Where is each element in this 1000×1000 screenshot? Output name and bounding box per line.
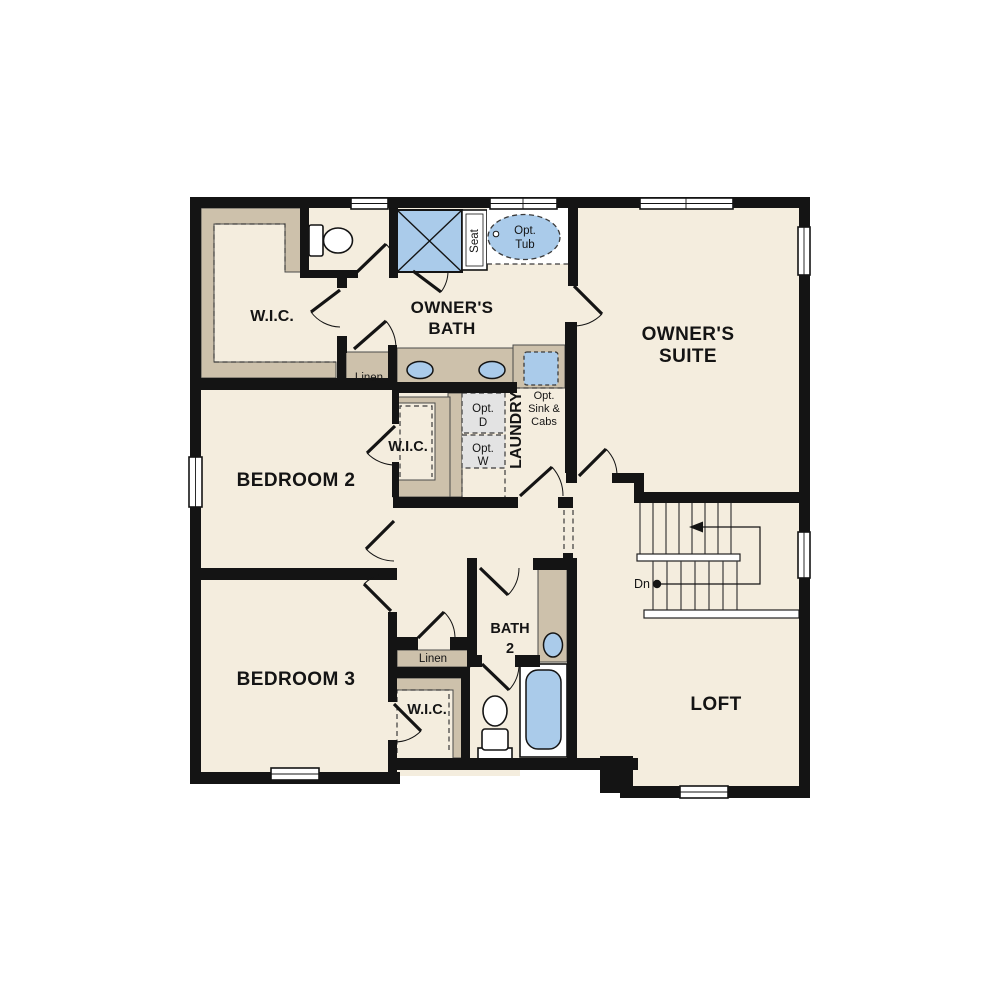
stair-start-dot <box>653 580 661 588</box>
wall-segment <box>467 558 477 657</box>
wall-segment <box>190 568 397 580</box>
floor-plan: OWNER'S SUITE OWNER'S BATH W.I.C. BEDROO… <box>0 0 1000 1000</box>
opt-sink <box>524 352 558 385</box>
wall-segment <box>566 473 577 483</box>
wall-segment <box>567 558 577 760</box>
wall-segment <box>799 197 810 798</box>
label-opt-sink-cabs-3: Cabs <box>531 416 557 428</box>
label-seat: Seat <box>469 228 481 252</box>
window <box>351 198 388 209</box>
opt-tub <box>488 215 560 260</box>
label-linen-lower: Linen <box>419 653 447 665</box>
wall-segment <box>568 208 578 286</box>
room-label-wic-bedroom2: W.I.C. <box>388 439 427 455</box>
wall-segment <box>300 208 309 278</box>
label-opt-dryer-2: D <box>479 417 487 429</box>
window <box>490 198 557 209</box>
room-label-owners-suite-2: SUITE <box>659 346 717 367</box>
tub-faucet <box>493 231 499 237</box>
room-label-laundry: LAUNDRY <box>508 391 525 469</box>
window <box>680 786 728 798</box>
bath2-toilet-tank <box>482 729 508 750</box>
window <box>271 768 319 780</box>
bath2-tub <box>526 670 561 749</box>
label-linen-upper: Linen <box>355 372 383 384</box>
wall-segment <box>388 612 397 702</box>
room-label-bedroom3: BEDROOM 3 <box>237 669 356 690</box>
label-stairs-down: Dn <box>634 577 650 591</box>
wall-segment <box>558 497 573 508</box>
window <box>189 457 202 507</box>
label-opt-tub-2: Tub <box>515 239 534 251</box>
room-label-wic-bedroom3: W.I.C. <box>407 702 446 718</box>
wall-segment <box>393 382 517 393</box>
window <box>640 198 733 209</box>
window <box>798 227 810 275</box>
wall-segment <box>392 462 399 497</box>
wall-segment <box>393 497 518 508</box>
toilet-bowl-wc <box>324 228 353 253</box>
wall-segment <box>565 322 577 473</box>
label-opt-washer: Opt. <box>472 443 494 455</box>
stair-bottom-edge <box>644 610 799 618</box>
label-opt-dryer: Opt. <box>472 403 494 415</box>
wall-segment <box>337 270 347 288</box>
wall-segment <box>388 740 397 772</box>
vanity-sink-right <box>479 362 505 379</box>
wall-segment <box>461 678 470 762</box>
wall-segment <box>393 637 418 650</box>
label-opt-washer-2: W <box>478 456 489 468</box>
wall-segment <box>393 667 470 678</box>
wall-segment <box>392 388 399 424</box>
window <box>798 532 810 578</box>
room-label-bath2-2: 2 <box>506 641 514 657</box>
room-label-bedroom2: BEDROOM 2 <box>237 470 356 491</box>
label-opt-tub: Opt. <box>514 225 536 237</box>
room-label-bath2: BATH <box>490 621 529 637</box>
toilet-tank-wc <box>309 225 323 256</box>
vanity-sink-left <box>407 362 433 379</box>
wall-segment <box>467 655 482 667</box>
room-label-owners-suite: OWNER'S <box>642 324 735 345</box>
bath2-toilet-bowl <box>483 696 507 726</box>
room-label-owners-wic: W.I.C. <box>250 308 294 325</box>
stair-landing <box>637 554 740 561</box>
label-opt-sink-cabs: Opt. <box>534 390 555 402</box>
room-label-owners-bath: OWNER'S <box>411 298 494 317</box>
label-opt-sink-cabs-2: Sink & <box>528 403 560 415</box>
room-label-loft: LOFT <box>690 694 741 715</box>
bath2-sink <box>544 633 563 657</box>
wall-segment <box>634 492 799 503</box>
room-label-owners-bath-2: BATH <box>428 319 475 338</box>
